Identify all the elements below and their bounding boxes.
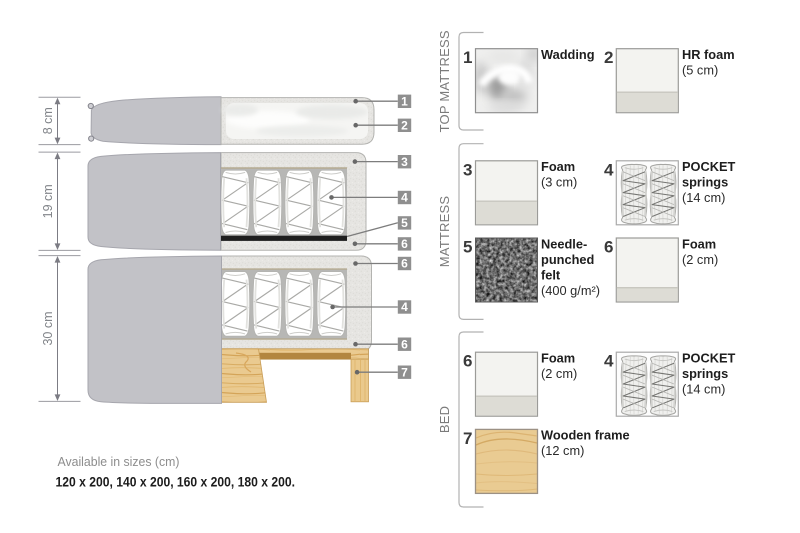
svg-text:30 cm: 30 cm	[41, 311, 55, 345]
svg-text:POCKET: POCKET	[682, 351, 736, 366]
svg-text:8 cm: 8 cm	[41, 107, 55, 134]
svg-text:HR foam: HR foam	[682, 47, 735, 62]
svg-text:(2 cm): (2 cm)	[541, 366, 577, 381]
svg-text:7: 7	[401, 365, 408, 379]
svg-text:4: 4	[401, 300, 408, 314]
svg-text:6: 6	[401, 337, 408, 351]
svg-text:Wooden frame: Wooden frame	[541, 428, 630, 443]
svg-text:(400 g/m²): (400 g/m²)	[541, 283, 600, 298]
svg-text:Foam: Foam	[682, 236, 716, 251]
svg-text:5: 5	[401, 216, 408, 230]
svg-text:2: 2	[604, 48, 613, 67]
svg-text:1: 1	[463, 48, 472, 67]
svg-text:Foam: Foam	[541, 351, 575, 366]
svg-text:5: 5	[463, 238, 472, 257]
svg-text:(14 cm): (14 cm)	[682, 382, 725, 397]
svg-text:6: 6	[401, 257, 408, 271]
svg-text:BED: BED	[437, 406, 452, 433]
svg-text:MATTRESS: MATTRESS	[437, 196, 452, 268]
svg-text:Available in sizes (cm): Available in sizes (cm)	[58, 454, 180, 469]
svg-text:(12 cm): (12 cm)	[541, 443, 584, 458]
svg-text:4: 4	[604, 160, 614, 179]
svg-text:felt: felt	[541, 267, 561, 282]
svg-text:punched: punched	[541, 252, 594, 267]
svg-text:4: 4	[604, 352, 614, 371]
svg-text:6: 6	[604, 238, 613, 257]
svg-text:(3 cm): (3 cm)	[541, 175, 577, 190]
svg-text:springs: springs	[682, 175, 728, 190]
svg-text:(14 cm): (14 cm)	[682, 190, 725, 205]
svg-text:2: 2	[401, 118, 408, 132]
svg-text:(5 cm): (5 cm)	[682, 63, 718, 78]
svg-text:(2 cm): (2 cm)	[682, 252, 718, 267]
svg-text:4: 4	[401, 191, 408, 205]
svg-text:6: 6	[401, 237, 408, 251]
svg-text:1: 1	[401, 94, 408, 108]
svg-text:6: 6	[463, 352, 472, 371]
svg-text:POCKET: POCKET	[682, 159, 736, 174]
svg-text:7: 7	[463, 429, 472, 448]
svg-text:TOP MATTRESS: TOP MATTRESS	[437, 30, 452, 132]
svg-text:3: 3	[463, 160, 472, 179]
svg-text:Needle-: Needle-	[541, 236, 587, 251]
svg-text:120 x 200, 140 x 200, 160 x 20: 120 x 200, 140 x 200, 160 x 200, 180 x 2…	[56, 474, 296, 490]
svg-text:Foam: Foam	[541, 159, 575, 174]
svg-text:3: 3	[401, 155, 408, 169]
svg-text:19 cm: 19 cm	[41, 184, 55, 218]
svg-text:springs: springs	[682, 366, 728, 381]
svg-text:Wadding: Wadding	[541, 47, 595, 62]
